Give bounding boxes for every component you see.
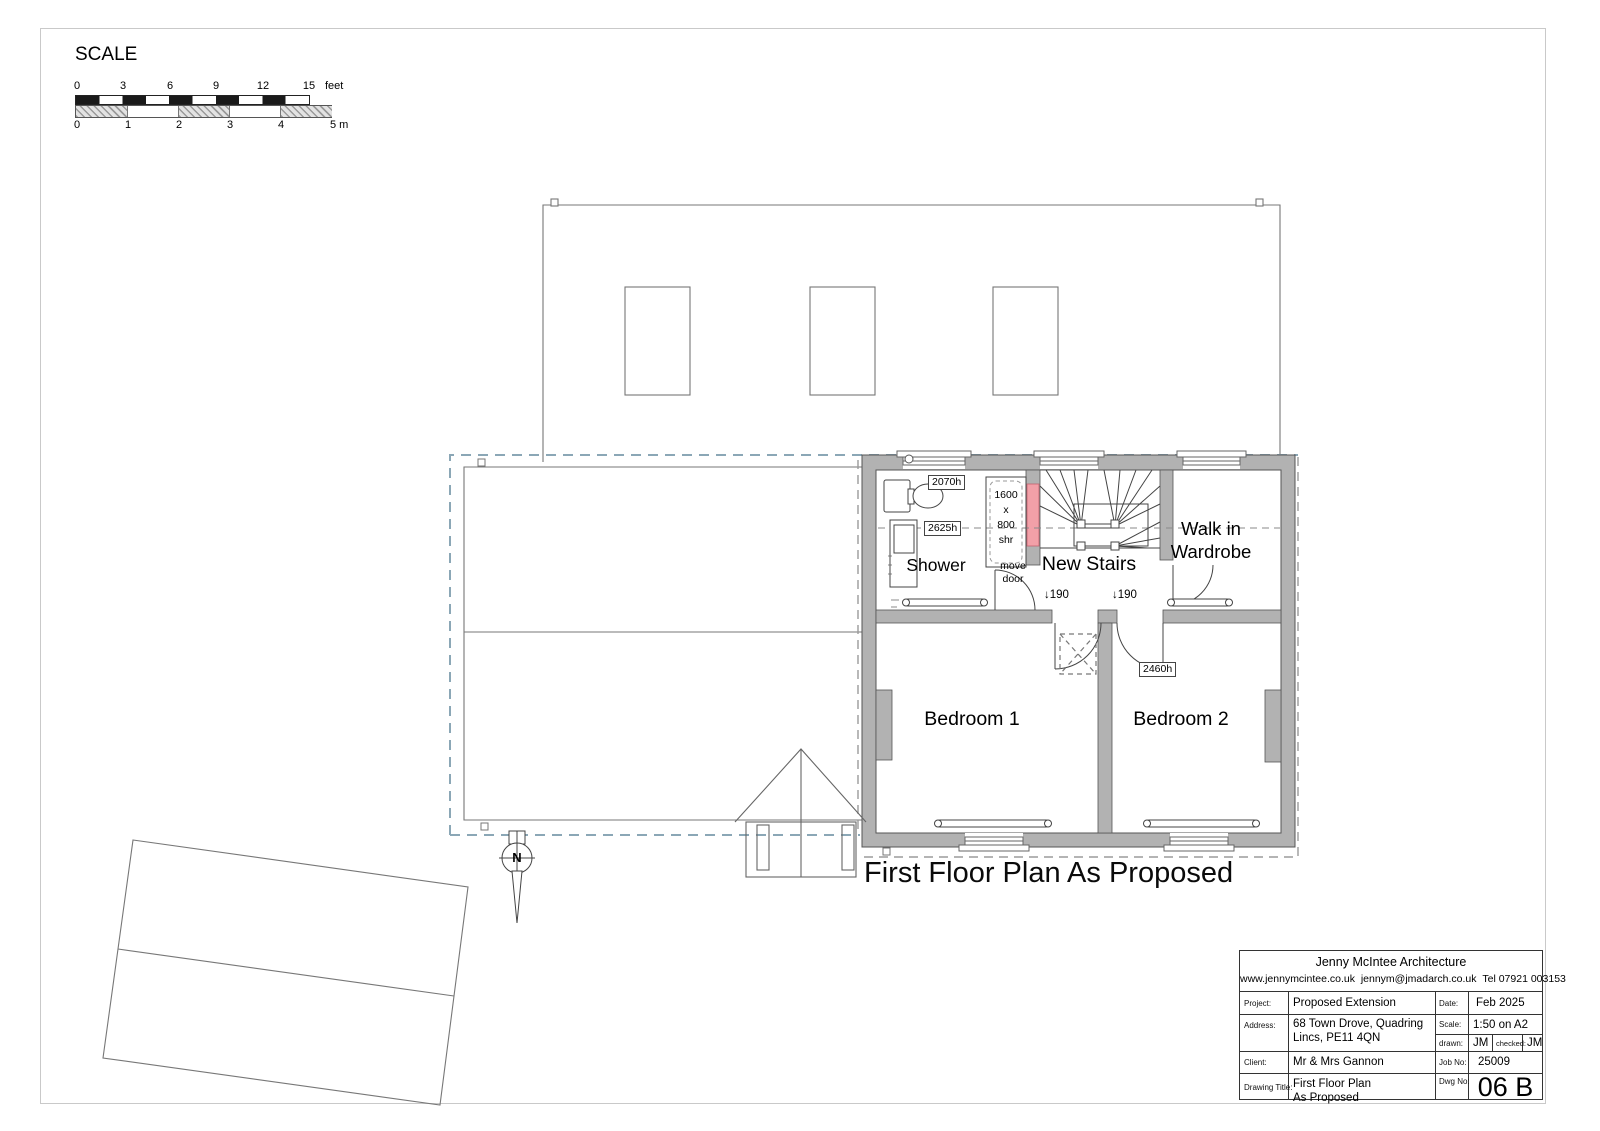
porch (735, 749, 866, 877)
rooflight-2 (810, 287, 875, 395)
drawing-title-line1: First Floor Plan (1293, 1077, 1371, 1091)
client-value: Mr & Mrs Gannon (1293, 1056, 1384, 1068)
step-down-right: ↓190 (1112, 589, 1137, 601)
vent-circle (905, 455, 913, 463)
new-wall-highlight (1027, 484, 1039, 546)
vanity-basin (888, 520, 917, 587)
corner-markers (478, 459, 890, 855)
window-bedroom2 (1164, 833, 1234, 851)
drawing-sheet: SCALE 0 3 6 9 12 15 feet 0 1 2 3 4 5 m (0, 0, 1600, 1131)
address-line2: Lincs, PE11 4QN (1293, 1031, 1423, 1045)
wardrobe-label-line2: Wardrobe (1171, 540, 1252, 563)
step-down-left: ↓190 (1044, 589, 1069, 601)
chimney-breast-left (876, 690, 892, 760)
dwg-no-value: 06 B (1469, 1072, 1542, 1103)
address-label: Address: (1244, 1021, 1276, 1030)
corner-marker (1256, 199, 1263, 206)
company-contact: www.jennymcintee.co.uk jennym@jmadarch.c… (1240, 973, 1542, 985)
drawing-title-line2: As Proposed (1293, 1091, 1371, 1105)
newel-post (1111, 542, 1119, 550)
radiator-shower (891, 599, 988, 607)
shower-size-line4: shr (994, 533, 1017, 548)
room-label-shower: Shower (906, 555, 965, 576)
ceiling-height-2460: 2460h (1139, 662, 1176, 677)
corner-marker (551, 199, 558, 206)
project-value: Proposed Extension (1293, 997, 1396, 1009)
company-website: www.jennymcintee.co.uk (1240, 973, 1355, 985)
ceiling-height-2070: 2070h (928, 475, 965, 490)
window-wardrobe (1177, 451, 1246, 469)
title-block: Jenny McIntee Architecture www.jennymcin… (1239, 950, 1543, 1100)
room-label-bedroom2: Bedroom 2 (1133, 708, 1228, 731)
drawn-label: drawn: (1439, 1039, 1463, 1048)
existing-roof-plan (543, 199, 1280, 462)
scale-label: Scale: (1439, 1020, 1461, 1029)
shower-size-line2: x (994, 503, 1017, 518)
exterior-walls (862, 455, 1295, 847)
move-door-line2: door (1000, 573, 1026, 586)
company-name: Jenny McIntee Architecture (1316, 955, 1467, 969)
radiator-bedroom2 (1144, 820, 1260, 827)
address-value: 68 Town Drove, Quadring Lincs, PE11 4QN (1293, 1017, 1423, 1045)
radiator-bedroom1 (935, 820, 1052, 827)
move-door-line1: move (1000, 560, 1026, 573)
checked-label: checked: (1496, 1039, 1526, 1048)
radiator-wardrobe (1168, 599, 1233, 606)
shower-size-note: 1600 x 800 shr (994, 488, 1017, 548)
outbuilding-roof (103, 840, 468, 1105)
cupboard-dashed-box (1060, 634, 1096, 674)
drawing-title-label: Drawing Title: (1244, 1083, 1292, 1092)
newel-post (1111, 520, 1119, 528)
newel-post (1077, 520, 1085, 528)
newel-post (1077, 542, 1085, 550)
job-no-value: 25009 (1478, 1056, 1510, 1068)
address-line1: 68 Town Drove, Quadring (1293, 1017, 1423, 1031)
room-label-new-stairs: New Stairs (1042, 553, 1136, 576)
extension-roof-plan (464, 467, 862, 820)
shower-size-line1: 1600 (994, 488, 1017, 503)
shower-size-line3: 800 (994, 518, 1017, 533)
drawn-value: JM (1473, 1037, 1488, 1049)
company-email: jennym@jmadarch.co.uk (1361, 973, 1477, 985)
date-label: Date: (1439, 999, 1458, 1008)
drawing-title-value: First Floor Plan As Proposed (1293, 1077, 1371, 1105)
window-stairs (1034, 451, 1104, 469)
bedroom-divider-wall (1098, 623, 1112, 833)
windows-top (897, 451, 1246, 469)
checked-value: JM (1527, 1037, 1542, 1049)
client-label: Client: (1244, 1058, 1267, 1067)
move-door-note: move door (1000, 560, 1026, 586)
staircase (1040, 470, 1160, 550)
window-bedroom1 (959, 833, 1029, 851)
north-letter: N (512, 850, 521, 865)
rooflight-3 (993, 287, 1058, 395)
drawing-caption: First Floor Plan As Proposed (864, 857, 1233, 890)
rooflight-1 (625, 287, 690, 395)
job-no-label: Job No: (1439, 1058, 1467, 1067)
north-arrow (499, 831, 535, 923)
chimney-breast-right (1265, 690, 1281, 762)
room-label-wardrobe: Walk in Wardrobe (1171, 517, 1252, 563)
dwg-no-label: Dwg No: (1439, 1077, 1470, 1086)
wardrobe-label-line1: Walk in (1171, 517, 1252, 540)
project-label: Project: (1244, 999, 1271, 1008)
ceiling-height-2625: 2625h (924, 521, 961, 536)
bedroom1-door (1055, 623, 1101, 669)
date-value: Feb 2025 (1476, 997, 1525, 1009)
room-label-bedroom1: Bedroom 1 (924, 708, 1019, 731)
company-phone: Tel 07921 003153 (1482, 973, 1566, 985)
scale-value: 1:50 on A2 (1473, 1019, 1528, 1031)
